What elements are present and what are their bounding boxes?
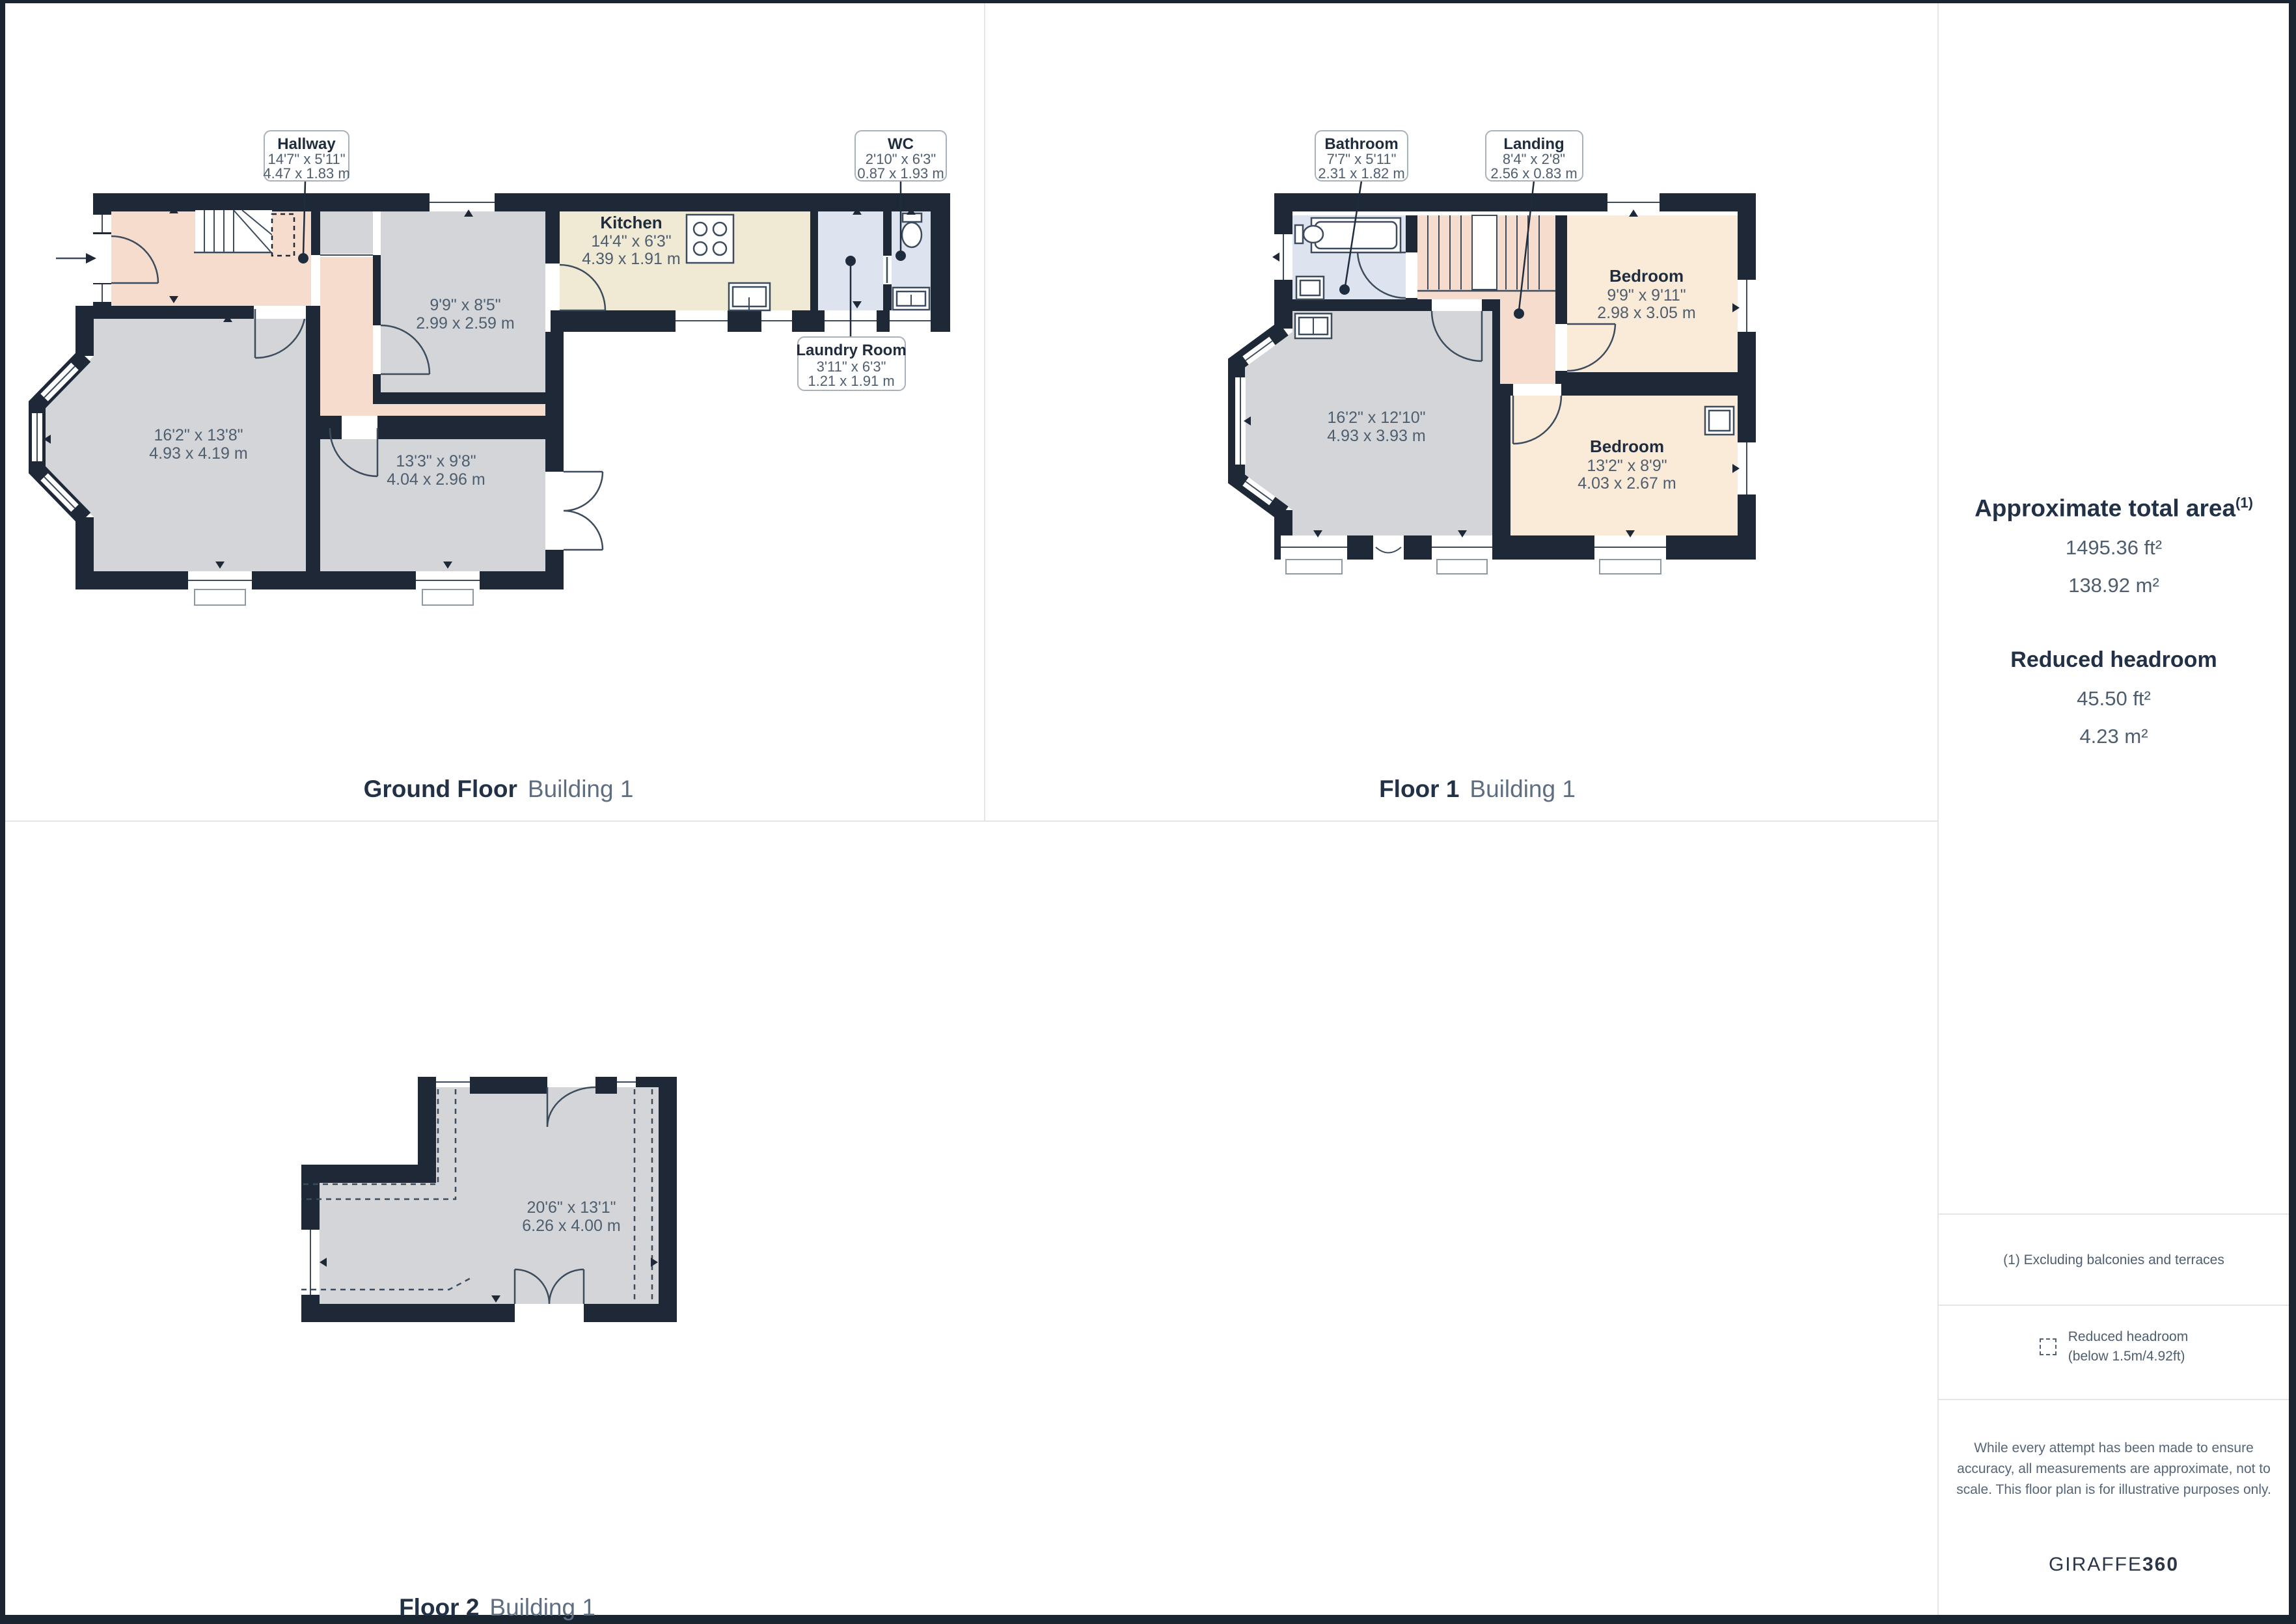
reduced-headroom-m: 4.23 m² bbox=[1939, 725, 2289, 748]
toilet-icon bbox=[902, 213, 922, 247]
svg-text:4.39 x 1.91 m: 4.39 x 1.91 m bbox=[582, 250, 680, 268]
wc-sink-icon bbox=[893, 288, 929, 310]
callout-landing: Landing 8'4" x 2'8" 2.56 x 0.83 m bbox=[1486, 131, 1583, 182]
svg-text:13'2" x 8'9": 13'2" x 8'9" bbox=[1587, 457, 1667, 475]
svg-text:4.03 x 2.67 m: 4.03 x 2.67 m bbox=[1578, 474, 1676, 493]
bathroom-sink-icon bbox=[1296, 277, 1324, 299]
living-room-label: 16'2" x 13'8" bbox=[154, 426, 243, 444]
svg-text:Bathroom: Bathroom bbox=[1324, 135, 1398, 153]
callout-hallway: Hallway 14'7" x 5'11" 4.47 x 1.83 m bbox=[263, 131, 349, 182]
radiator-icon bbox=[1705, 407, 1734, 435]
kitchen-sink-icon bbox=[729, 283, 770, 310]
stove-icon bbox=[687, 215, 733, 263]
svg-text:14'4" x 6'3": 14'4" x 6'3" bbox=[591, 232, 671, 250]
svg-text:4.47 x 1.83 m: 4.47 x 1.83 m bbox=[263, 165, 349, 182]
svg-text:Hallway: Hallway bbox=[277, 135, 336, 153]
svg-text:6.26 x 4.00 m: 6.26 x 4.00 m bbox=[522, 1217, 620, 1235]
giraffe360-logo: GIRAFFE360 bbox=[1939, 1554, 2289, 1576]
floor-1-plan: Bathroom 7'7" x 5'11" 2.31 x 1.82 m Land… bbox=[1223, 124, 1777, 797]
callout-bathroom: Bathroom 7'7" x 5'11" 2.31 x 1.82 m bbox=[1315, 131, 1408, 182]
floor-2-plan: 20'6" x 13'1" 6.26 x 4.00 m bbox=[286, 1074, 709, 1412]
legend: Reduced headroom (below 1.5m/4.92ft) bbox=[1939, 1327, 2289, 1366]
svg-text:4.04 x 2.96 m: 4.04 x 2.96 m bbox=[387, 470, 485, 489]
reduced-headroom-ft: 45.50 ft² bbox=[1939, 687, 2289, 710]
total-area-m: 138.92 m² bbox=[1939, 574, 2289, 597]
total-area-ft: 1495.36 ft² bbox=[1939, 536, 2289, 560]
closet-dashed bbox=[272, 214, 294, 256]
reduced-headroom-block: Reduced headroom 45.50 ft² 4.23 m² bbox=[1939, 647, 2289, 748]
sidebar-section-divider-3 bbox=[1939, 1399, 2289, 1400]
floor-1-caption: Floor 1Building 1 bbox=[1379, 776, 1576, 803]
svg-text:0.87 x 1.93 m: 0.87 x 1.93 m bbox=[857, 165, 944, 182]
french-doors bbox=[564, 472, 603, 550]
svg-text:Laundry Room: Laundry Room bbox=[796, 342, 906, 359]
disclaimer: While every attempt has been made to ens… bbox=[1939, 1438, 2289, 1500]
floor-2-caption: Floor 2Building 1 bbox=[399, 1594, 595, 1621]
panel-divider-horizontal bbox=[5, 820, 1937, 822]
ground-floor-caption: Ground FloorBuilding 1 bbox=[364, 776, 634, 803]
total-area-title: Approximate total area(1) 1495.36 ft² 13… bbox=[1939, 494, 2289, 597]
reduced-headroom-icon bbox=[2040, 1338, 2057, 1355]
floorplan-page: Hallway 14'7" x 5'11" 4.47 x 1.83 m WC 2… bbox=[0, 0, 2296, 1624]
cupboard-room bbox=[320, 210, 373, 254]
svg-text:2.56 x 0.83 m: 2.56 x 0.83 m bbox=[1490, 165, 1577, 182]
ground-floor-plan: Hallway 14'7" x 5'11" 4.47 x 1.83 m WC 2… bbox=[13, 124, 989, 797]
footnote: (1) Excluding balconies and terraces bbox=[1939, 1252, 2289, 1268]
callout-wc: WC 2'10" x 6'3" 0.87 x 1.93 m bbox=[855, 131, 946, 182]
middle-room-label: 9'9" x 8'5" bbox=[430, 296, 500, 314]
floor2-main-label: 20'6" x 13'1" bbox=[526, 1198, 616, 1217]
reception-room-label: 13'3" x 9'8" bbox=[396, 452, 476, 470]
bedroom2-label: Bedroom bbox=[1590, 437, 1664, 456]
svg-text:2.98 x 3.05 m: 2.98 x 3.05 m bbox=[1597, 304, 1695, 322]
stairs-icon bbox=[194, 210, 272, 253]
svg-text:1.21 x 1.91 m: 1.21 x 1.91 m bbox=[808, 373, 894, 389]
floor2-main-room bbox=[320, 1087, 659, 1304]
kitchen-label: Kitchen bbox=[600, 213, 662, 232]
svg-text:9'9" x 9'11": 9'9" x 9'11" bbox=[1607, 286, 1686, 304]
svg-text:4.93 x 3.93 m: 4.93 x 3.93 m bbox=[1327, 427, 1425, 445]
bathtub-icon bbox=[1311, 218, 1401, 252]
svg-text:WC: WC bbox=[888, 135, 914, 153]
svg-text:2.99 x 2.59 m: 2.99 x 2.59 m bbox=[416, 314, 514, 332]
sidebar-section-divider-1 bbox=[1939, 1213, 2289, 1215]
floor1-main-label: 16'2" x 12'10" bbox=[1327, 409, 1425, 427]
vanity-sink-icon bbox=[1295, 314, 1332, 338]
callout-laundry: Laundry Room 3'11" x 6'3" 1.21 x 1.91 m bbox=[796, 337, 906, 390]
svg-text:2.31 x 1.82 m: 2.31 x 1.82 m bbox=[1318, 165, 1404, 182]
svg-text:4.93 x 4.19 m: 4.93 x 4.19 m bbox=[149, 444, 247, 463]
sidebar-section-divider-2 bbox=[1939, 1305, 2289, 1306]
toilet-icon bbox=[1295, 225, 1323, 243]
sidebar-divider bbox=[1937, 3, 1939, 1615]
svg-text:Landing: Landing bbox=[1503, 135, 1564, 153]
bedroom1-label: Bedroom bbox=[1609, 266, 1684, 286]
panel-divider-vertical bbox=[984, 3, 985, 820]
